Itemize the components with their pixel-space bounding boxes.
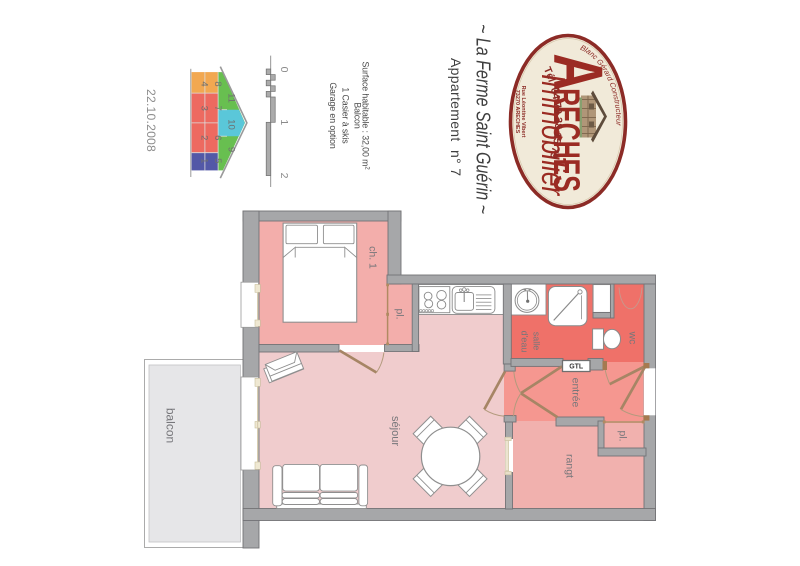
svg-text:pl.: pl.	[394, 308, 406, 319]
svg-text:1: 1	[199, 158, 210, 163]
svg-text:balcon: balcon	[164, 408, 178, 443]
svg-text:6: 6	[212, 135, 223, 140]
svg-text:73270 ARECHES: 73270 ARECHES	[514, 90, 520, 134]
svg-text:~ La Ferme Saint Guérin ~: ~ La Ferme Saint Guérin ~	[472, 24, 494, 214]
svg-text:GTL: GTL	[569, 364, 584, 371]
svg-text:Appartement n° 7: Appartement n° 7	[448, 58, 464, 176]
svg-text:wc: wc	[627, 331, 639, 345]
svg-text:8: 8	[212, 81, 223, 86]
svg-text:1: 1	[278, 119, 290, 125]
svg-text:ch. 1: ch. 1	[367, 246, 379, 269]
svg-text:10: 10	[225, 119, 236, 130]
svg-text:9: 9	[225, 147, 236, 152]
svg-text:rangt: rangt	[564, 454, 576, 478]
svg-text:Garage en option: Garage en option	[328, 82, 338, 149]
svg-text:2: 2	[278, 173, 290, 179]
svg-text:séjour: séjour	[389, 416, 401, 446]
svg-text:7: 7	[212, 106, 223, 111]
svg-text:11: 11	[225, 93, 236, 103]
svg-text:salle: salle	[531, 332, 541, 351]
svg-text:Balcon: Balcon	[352, 102, 362, 129]
svg-text:3: 3	[199, 106, 210, 111]
svg-text:d'eau: d'eau	[520, 331, 530, 353]
svg-text:pl.: pl.	[617, 430, 629, 441]
svg-text:5: 5	[212, 158, 223, 163]
svg-text:22.10.2008: 22.10.2008	[144, 89, 158, 152]
svg-text:4: 4	[199, 81, 210, 86]
svg-text:2: 2	[199, 135, 210, 140]
svg-text:entrée: entrée	[570, 378, 582, 408]
svg-text:1 Casier à skis: 1 Casier à skis	[341, 87, 351, 144]
svg-text:0: 0	[278, 67, 290, 73]
